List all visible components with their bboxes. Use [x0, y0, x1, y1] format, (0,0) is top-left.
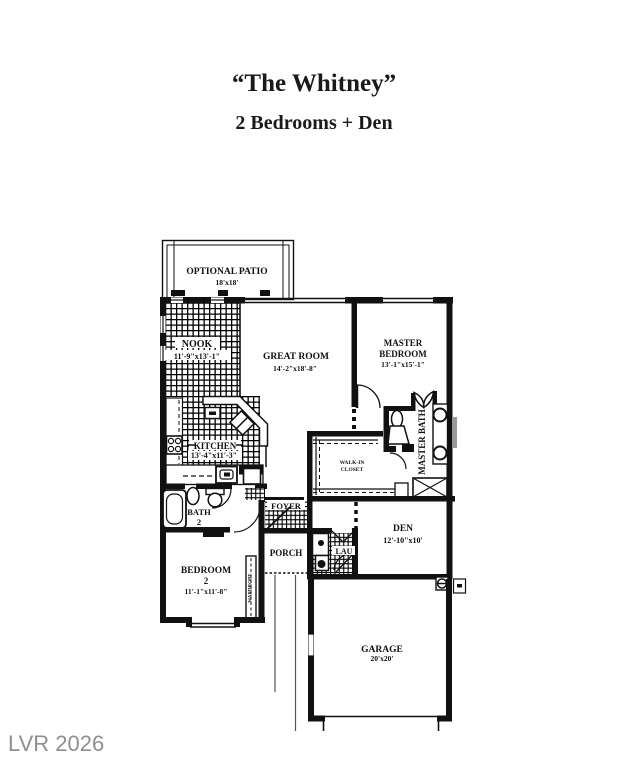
svg-text:13'-4"x11'-3": 13'-4"x11'-3": [191, 451, 237, 460]
svg-text:12'-10"x10': 12'-10"x10': [383, 536, 423, 545]
svg-text:CLOSET: CLOSET: [341, 467, 364, 473]
svg-text:GREAT ROOM: GREAT ROOM: [263, 352, 329, 362]
svg-text:OPTIONAL PATIO: OPTIONAL PATIO: [186, 267, 267, 277]
svg-text:PORCH: PORCH: [270, 548, 303, 558]
svg-text:MASTER: MASTER: [384, 338, 423, 348]
svg-text:14'-2"x18'-8": 14'-2"x18'-8": [273, 364, 317, 373]
svg-text:2: 2: [204, 576, 209, 586]
svg-text:BATH: BATH: [187, 507, 211, 517]
svg-text:20'x20': 20'x20': [371, 654, 394, 663]
svg-text:BEDROOM: BEDROOM: [379, 349, 427, 359]
svg-text:11'-1"x11'-8": 11'-1"x11'-8": [185, 587, 228, 596]
svg-text:18'x18': 18'x18': [216, 278, 239, 287]
svg-text:BEDROOM: BEDROOM: [181, 566, 231, 576]
svg-text:11'-9"x13'-1": 11'-9"x13'-1": [174, 352, 220, 361]
svg-text:NOOK: NOOK: [182, 339, 213, 350]
svg-text:WARDROBE: WARDROBE: [249, 573, 254, 603]
svg-text:MASTER BATH: MASTER BATH: [417, 409, 427, 475]
svg-text:13'-1"x15'-1": 13'-1"x15'-1": [381, 360, 425, 369]
svg-text:WALK-IN: WALK-IN: [340, 460, 365, 466]
svg-text:2: 2: [197, 517, 201, 527]
svg-text:DEN: DEN: [393, 524, 413, 534]
svg-text:LAU: LAU: [336, 547, 353, 556]
svg-text:KITCHEN: KITCHEN: [194, 441, 237, 451]
